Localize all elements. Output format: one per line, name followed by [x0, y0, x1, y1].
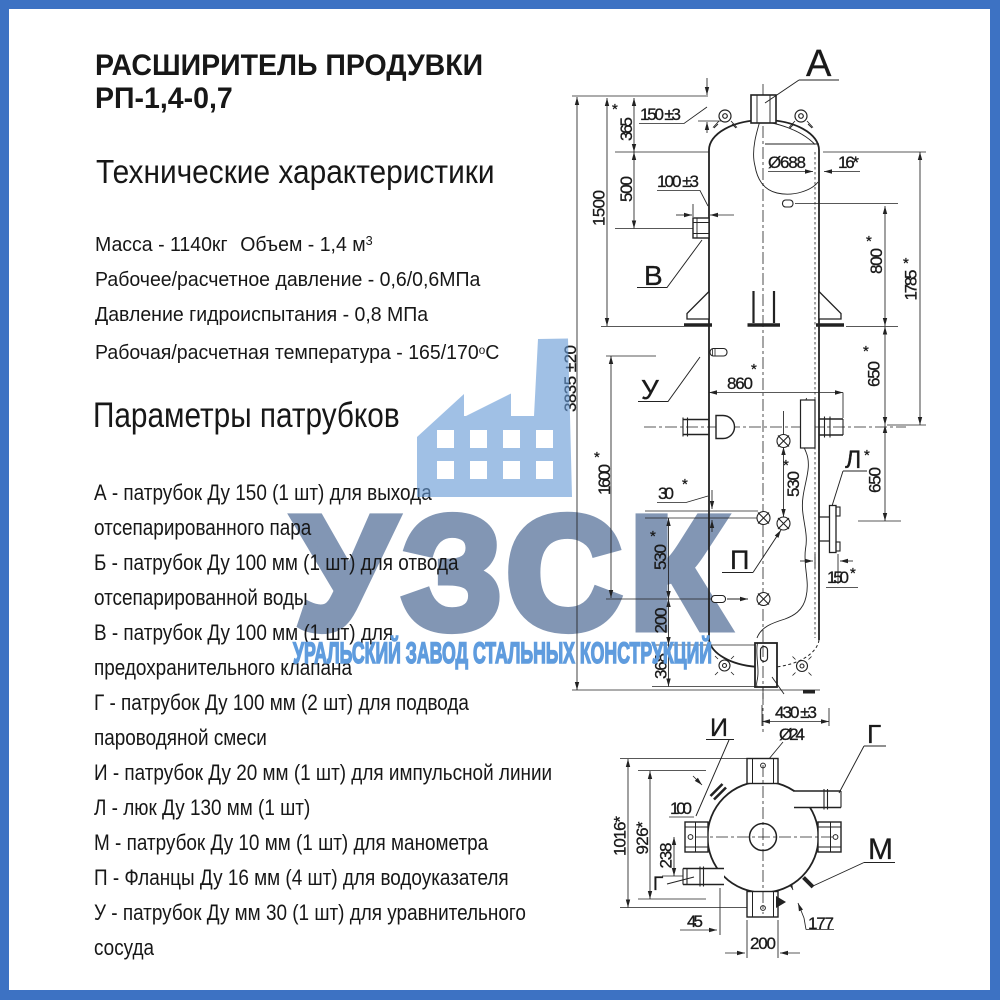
svg-text:УРАЛЬСКИЙ ЗАВОД СТАЛЬНЫХ КОНСТ: УРАЛЬСКИЙ ЗАВОД СТАЛЬНЫХ КОНСТРУКЦИЙ — [293, 636, 712, 670]
